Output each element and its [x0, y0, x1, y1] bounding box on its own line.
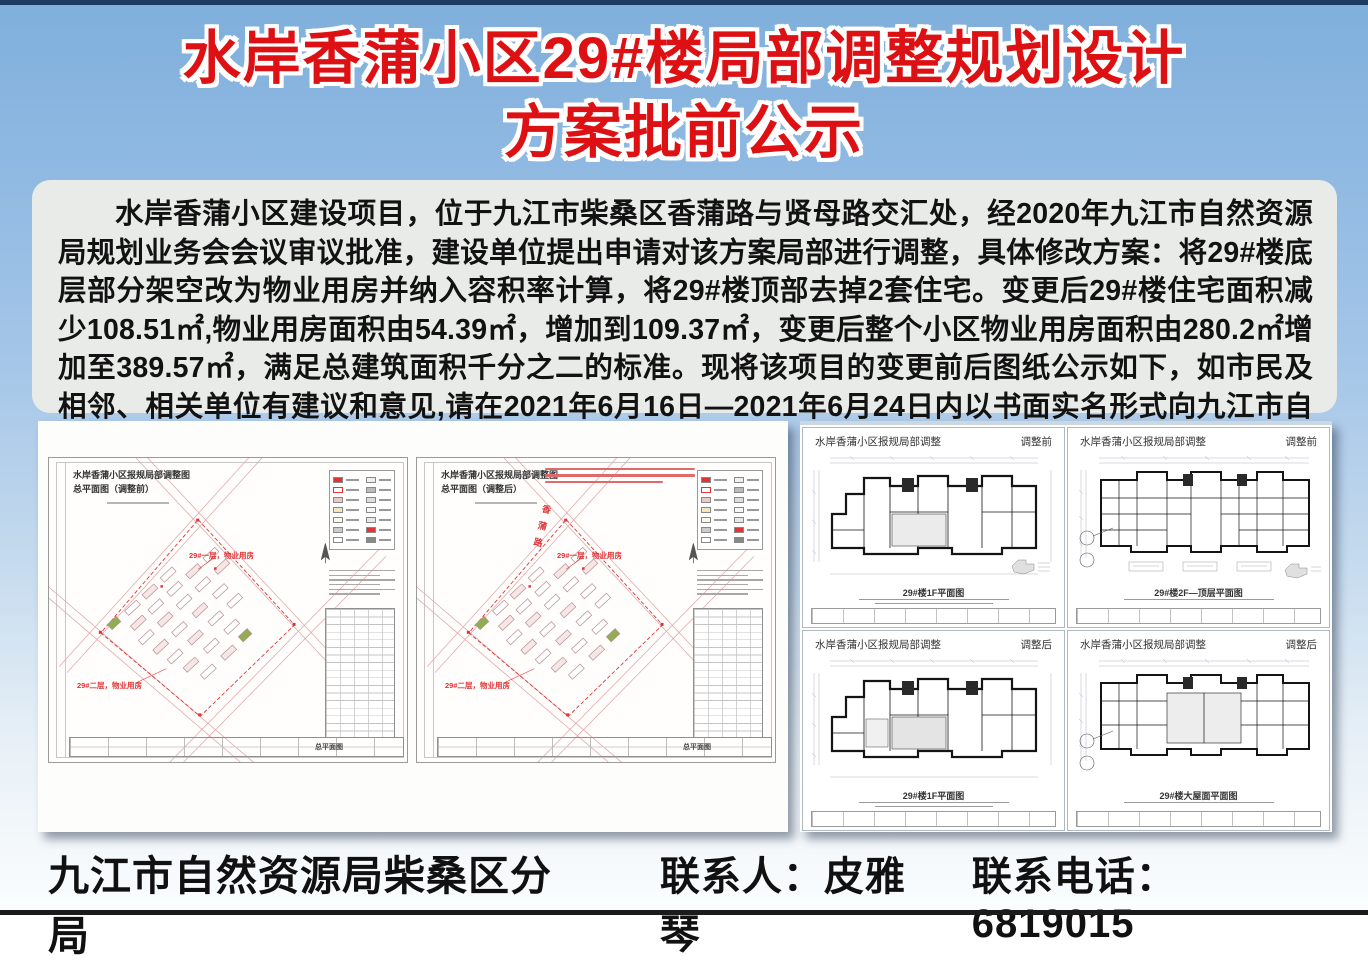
titleblock-caption: 总平面图 — [683, 742, 711, 752]
page-title-line2: 方案批前公示 — [0, 96, 1368, 170]
red-callout-top: 29#一层，物业用房 — [189, 550, 254, 561]
page-title-line1: 水岸香蒲小区29#楼局部调整规划设计 — [0, 22, 1368, 96]
technical-indicator-table — [693, 608, 763, 738]
titleblock-strip — [69, 737, 404, 757]
contact-phone: 联系电话：6819015 — [972, 844, 1338, 947]
floor-plan-sheet-roof-after: 水岸香蒲小区报规局部调整 调整后 — [1067, 630, 1330, 831]
plan-note-lines — [1068, 802, 1329, 803]
legend-box — [329, 470, 395, 550]
sheet-subnote-line — [107, 502, 169, 504]
plan-caption: 29#楼1F平面图 — [803, 789, 1064, 802]
drawing-notes-lines — [697, 570, 763, 595]
site-plan-sheet-after: 水岸香蒲小区报规局部调整图 总平面图（调整后） 香蒲路 29#一层，物业用房 2… — [416, 457, 776, 763]
titleblock-strip — [1076, 608, 1321, 624]
site-plan-sheet-before: 水岸香蒲小区报规局部调整图 总平面图（调整前） 29#一层，物业用房 29#二层… — [48, 457, 408, 763]
sheet-header-status: 调整前 — [1286, 434, 1318, 449]
floor-plan-drawing — [1071, 653, 1327, 789]
floor-plan-drawing — [806, 450, 1062, 586]
top-border-strip — [0, 0, 1368, 5]
sheet-header-title: 水岸香蒲小区报规局部调整 — [1080, 637, 1206, 652]
plan-note-lines — [1068, 599, 1329, 600]
floor-plan-sheet-1f-before: 水岸香蒲小区报规局部调整 调整前 — [802, 427, 1065, 628]
red-callout-bottom: 29#二层，物业用房 — [77, 680, 142, 691]
titleblock-strip — [1076, 811, 1321, 827]
sheet-subnote-line — [475, 502, 537, 504]
drawing-notes-lines — [329, 570, 395, 595]
sheet-subtitle: 总平面图（调整前） — [73, 482, 190, 496]
plan-note-lines — [803, 599, 1064, 604]
adjustment-note-lines — [545, 468, 695, 483]
floor-plan-drawing — [806, 653, 1062, 789]
titleblock-strip — [811, 608, 1056, 624]
plan-caption: 29#楼2F—顶层平面图 — [1068, 586, 1329, 599]
contact-person: 联系人：皮雅琴 — [660, 844, 946, 960]
site-plan-panel: 水岸香蒲小区报规局部调整图 总平面图（调整前） 29#一层，物业用房 29#二层… — [38, 421, 788, 832]
plan-caption: 29#楼1F平面图 — [803, 586, 1064, 599]
footer-contact-line: 九江市自然资源局柴桑区分局 联系人：皮雅琴 联系电话：6819015 — [48, 842, 1338, 962]
sheet-title: 水岸香蒲小区报规局部调整图 — [73, 468, 190, 482]
technical-indicator-table — [325, 608, 395, 738]
sheet-header-status: 调整后 — [1021, 637, 1053, 652]
sheet-header-title: 水岸香蒲小区报规局部调整 — [815, 434, 941, 449]
bottom-border-strip — [0, 910, 1368, 915]
sheet-title-block: 水岸香蒲小区报规局部调整图 总平面图（调整后） — [441, 468, 558, 497]
titleblock-strip — [437, 737, 772, 757]
red-callout-top: 29#一层，物业用房 — [557, 550, 622, 561]
notice-text-box: 水岸香蒲小区建设项目，位于九江市柴桑区香蒲路与贤母路交汇处，经2020年九江市自… — [32, 180, 1337, 413]
sheet-header-status: 调整前 — [1021, 434, 1053, 449]
sheet-header-title: 水岸香蒲小区报规局部调整 — [815, 637, 941, 652]
plan-caption: 29#楼大屋面平面图 — [1068, 789, 1329, 802]
titleblock-strip — [811, 811, 1056, 827]
page-title: 水岸香蒲小区29#楼局部调整规划设计 方案批前公示 — [0, 22, 1368, 170]
issuing-organization: 九江市自然资源局柴桑区分局 — [48, 842, 592, 962]
legend-box — [697, 470, 763, 550]
sheet-title-block: 水岸香蒲小区报规局部调整图 总平面图（调整前） — [73, 468, 190, 497]
sheet-header-title: 水岸香蒲小区报规局部调整 — [1080, 434, 1206, 449]
notice-poster: 水岸香蒲小区29#楼局部调整规划设计 方案批前公示 水岸香蒲小区建设项目，位于九… — [0, 0, 1368, 915]
floor-plan-sheet-typical-before: 水岸香蒲小区报规局部调整 调整前 — [1067, 427, 1330, 628]
floor-plan-drawing — [1071, 450, 1327, 586]
sheet-header-status: 调整后 — [1286, 637, 1318, 652]
plan-note-lines — [803, 802, 1064, 807]
floor-plan-panel: 水岸香蒲小区报规局部调整 调整前 — [800, 421, 1332, 832]
floor-plan-sheet-1f-after: 水岸香蒲小区报规局部调整 调整后 — [802, 630, 1065, 831]
red-callout-bottom: 29#二层，物业用房 — [445, 680, 510, 691]
sheet-title: 水岸香蒲小区报规局部调整图 — [441, 468, 558, 482]
sheet-subtitle: 总平面图（调整后） — [441, 482, 558, 496]
titleblock-caption: 总平面图 — [315, 742, 343, 752]
